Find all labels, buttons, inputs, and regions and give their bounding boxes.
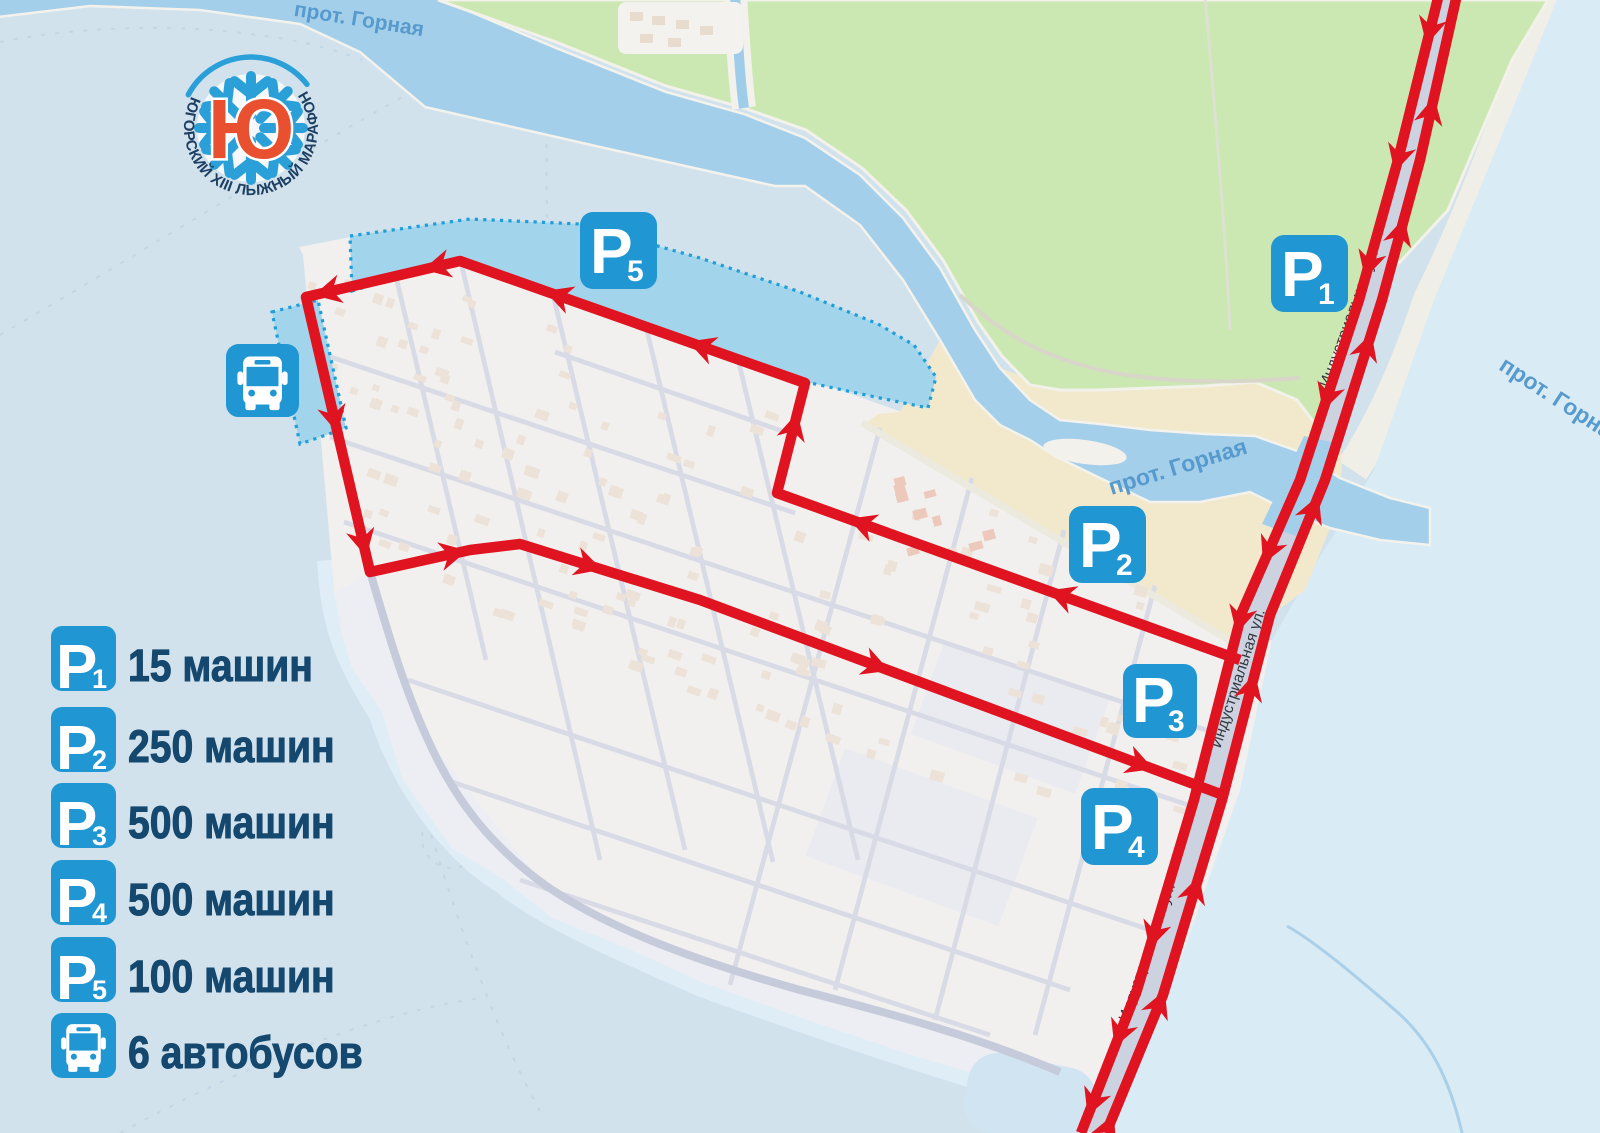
svg-text:4: 4: [92, 898, 107, 928]
svg-text:15 машин: 15 машин: [128, 640, 313, 690]
svg-text:Ю: Ю: [208, 82, 295, 176]
svg-text:2: 2: [92, 745, 107, 775]
svg-text:5: 5: [627, 255, 644, 288]
svg-text:3: 3: [92, 821, 107, 851]
svg-text:250 машин: 250 машин: [128, 721, 335, 771]
svg-text:6 автобусов: 6 автобусов: [128, 1027, 363, 1077]
svg-text:500 машин: 500 машин: [128, 797, 335, 847]
svg-text:100 машин: 100 машин: [128, 951, 335, 1001]
svg-text:1: 1: [1318, 278, 1335, 311]
svg-text:500 машин: 500 машин: [128, 874, 335, 924]
svg-text:2: 2: [1116, 549, 1133, 582]
svg-text:5: 5: [92, 975, 107, 1005]
svg-text:3: 3: [1168, 705, 1185, 738]
svg-text:1: 1: [92, 664, 107, 694]
svg-text:4: 4: [1128, 831, 1145, 864]
